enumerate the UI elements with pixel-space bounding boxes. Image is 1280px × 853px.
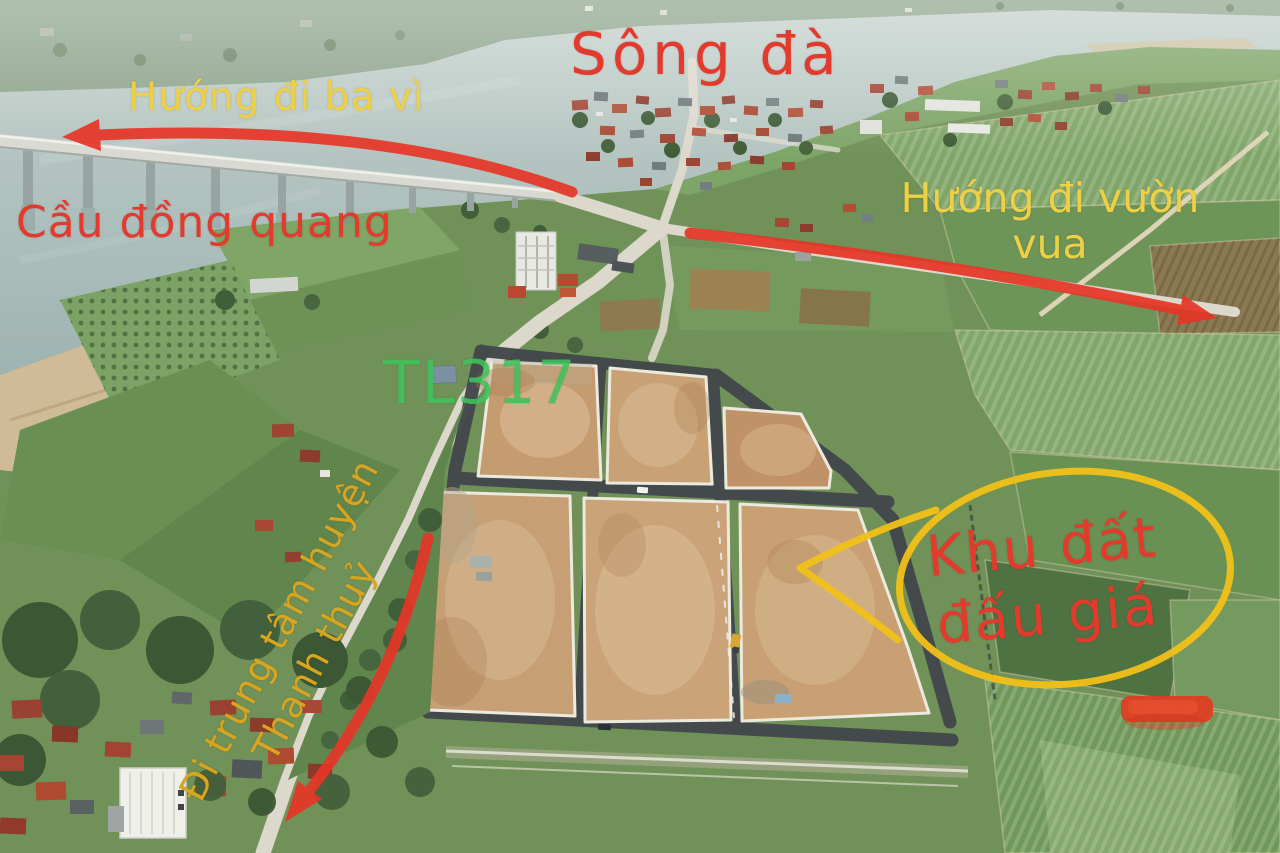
haze (0, 0, 1280, 160)
aerial-photo-background (0, 0, 1280, 853)
annotated-aerial-photo: Sông đà Hướng đi ba vì Cầu đồng quang Hư… (0, 0, 1280, 853)
